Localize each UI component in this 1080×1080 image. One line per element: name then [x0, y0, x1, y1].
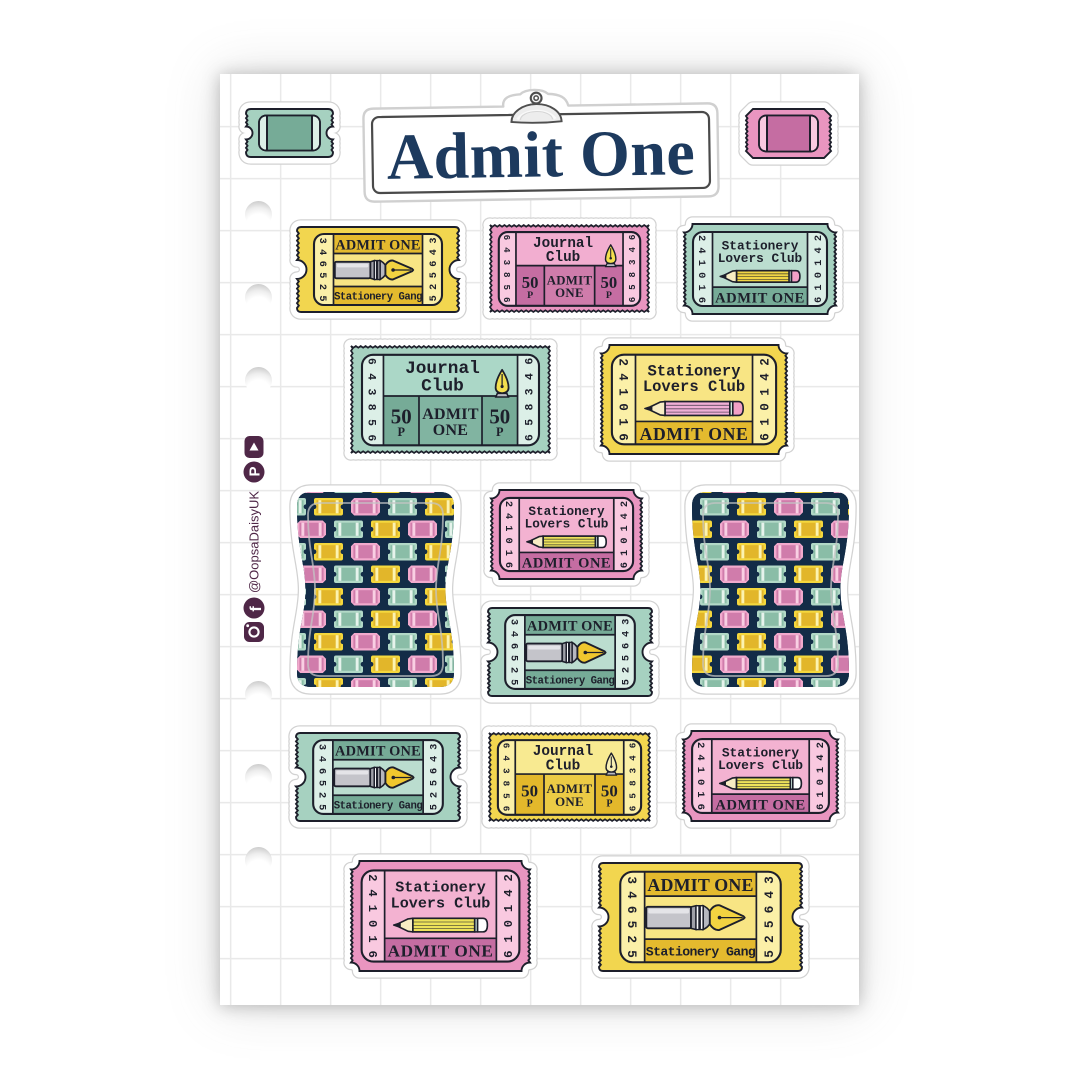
svg-text:P: P — [527, 799, 533, 810]
svg-text:P: P — [246, 466, 263, 476]
svg-text:Lovers Club: Lovers Club — [525, 517, 609, 532]
svg-text:P: P — [496, 425, 504, 439]
svg-text:ADMIT ONE: ADMIT ONE — [335, 744, 421, 760]
svg-text:Stationery Gang: Stationery Gang — [334, 292, 422, 304]
svg-text:Stationery Gang: Stationery Gang — [646, 944, 756, 959]
svg-text:Lovers Club: Lovers Club — [391, 894, 491, 912]
svg-text:ONE: ONE — [433, 422, 469, 439]
svg-text:Club: Club — [546, 758, 581, 774]
svg-text:ADMIT: ADMIT — [422, 406, 479, 423]
svg-text:ADMIT ONE: ADMIT ONE — [715, 290, 805, 306]
svg-text:ADMIT: ADMIT — [547, 782, 593, 796]
svg-text:Lovers Club: Lovers Club — [718, 758, 803, 773]
svg-text:ADMIT ONE: ADMIT ONE — [522, 555, 611, 571]
svg-text:f: f — [248, 606, 265, 612]
svg-text:Club: Club — [421, 376, 464, 396]
svg-text:ADMIT ONE: ADMIT ONE — [715, 797, 805, 813]
svg-text:ADMIT ONE: ADMIT ONE — [335, 237, 420, 253]
svg-text:Club: Club — [546, 250, 580, 266]
svg-text:Lovers Club: Lovers Club — [718, 251, 803, 266]
svg-text:ADMIT ONE: ADMIT ONE — [640, 424, 749, 444]
svg-text:Admit One: Admit One — [386, 116, 696, 194]
svg-text:ADMIT ONE: ADMIT ONE — [647, 875, 753, 895]
svg-text:P: P — [527, 290, 533, 301]
svg-text:@OopsaDaisyUK: @OopsaDaisyUK — [246, 491, 261, 593]
svg-text:P: P — [606, 799, 612, 810]
svg-text:ADMIT ONE: ADMIT ONE — [527, 619, 613, 635]
svg-text:Stationery Gang: Stationery Gang — [334, 800, 423, 812]
svg-text:ONE: ONE — [555, 286, 584, 300]
svg-text:P: P — [606, 290, 612, 301]
svg-text:ONE: ONE — [555, 795, 584, 809]
svg-text:ADMIT ONE: ADMIT ONE — [388, 942, 494, 961]
svg-text:Lovers Club: Lovers Club — [643, 378, 745, 396]
svg-text:Stationery Gang: Stationery Gang — [526, 675, 615, 687]
svg-text:P: P — [397, 425, 405, 439]
